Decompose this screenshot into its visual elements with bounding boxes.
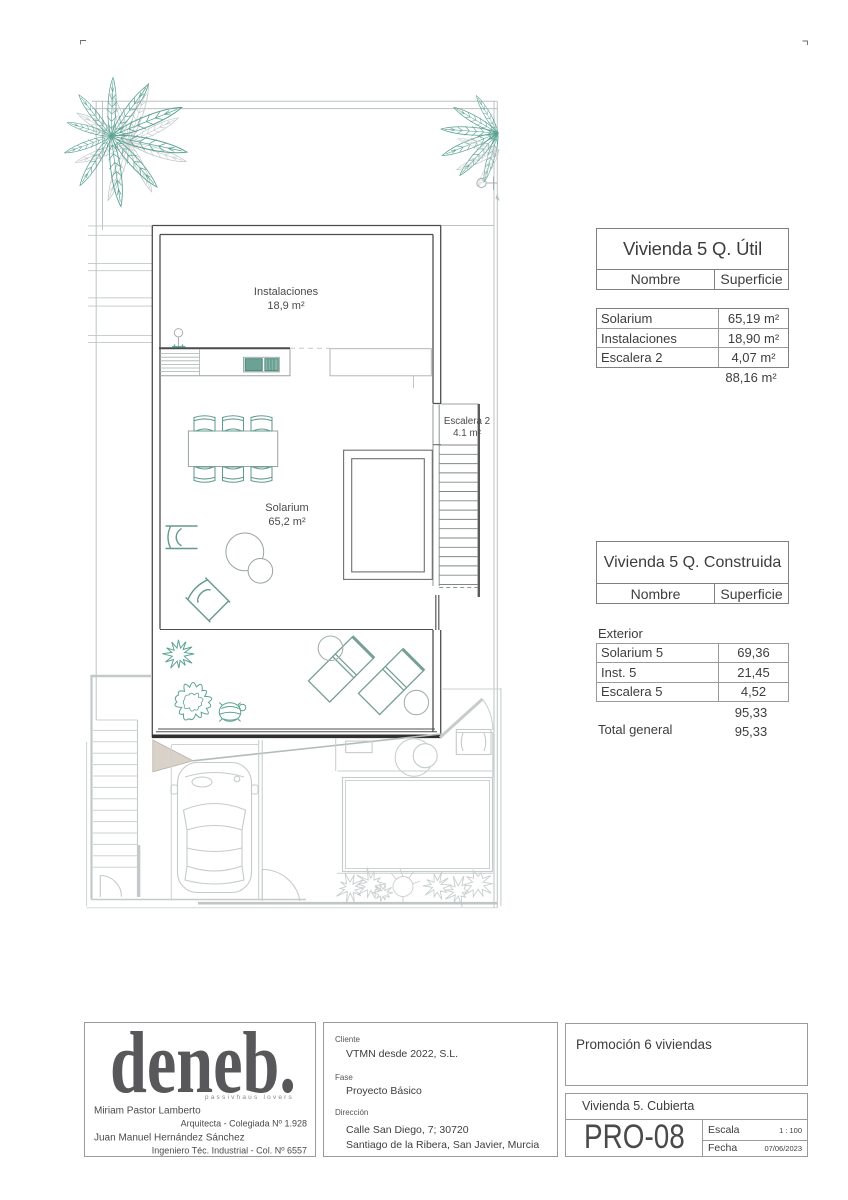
svg-text:Miriam Pastor Lamberto: Miriam Pastor Lamberto (94, 1106, 201, 1117)
svg-text:Ingeniero Téc. Industrial - Co: Ingeniero Téc. Industrial - Col. Nº 6557 (152, 1146, 307, 1156)
svg-text:Escalera 2: Escalera 2 (444, 416, 490, 427)
svg-text:18,9 m²: 18,9 m² (267, 300, 305, 312)
svg-text:65,2 m²: 65,2 m² (268, 516, 306, 528)
svg-text:Arquitecta - Colegiada Nº 1.92: Arquitecta - Colegiada Nº 1.928 (181, 1119, 307, 1129)
svg-text:Juan Manuel Hernández Sánchez: Juan Manuel Hernández Sánchez (94, 1133, 245, 1144)
svg-text:4.1 m²: 4.1 m² (453, 428, 482, 439)
svg-text:Solarium: Solarium (265, 502, 308, 514)
svg-text:passivhaus lovers: passivhaus lovers (205, 1094, 294, 1101)
svg-text:Instalaciones: Instalaciones (254, 286, 319, 298)
